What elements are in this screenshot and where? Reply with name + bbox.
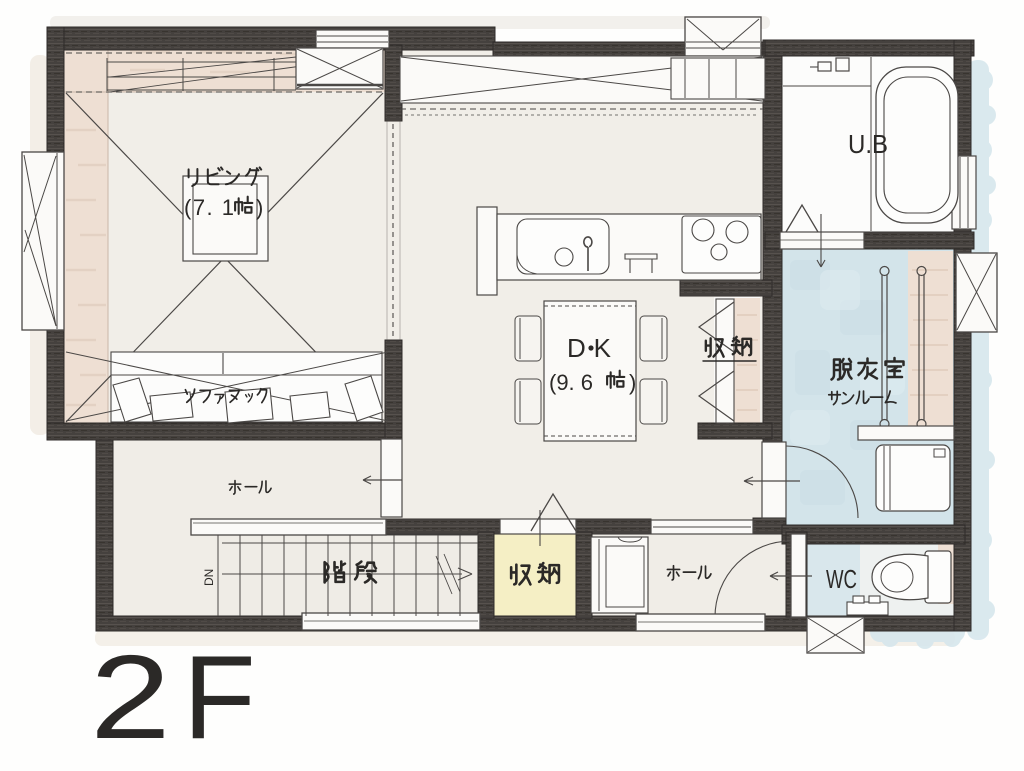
svg-text:(7. 1: (7. 1: [184, 195, 236, 220]
svg-text:WC: WC: [826, 564, 857, 594]
svg-text:2: 2: [90, 631, 171, 764]
svg-text:F: F: [183, 631, 256, 764]
svg-text:U.B: U.B: [848, 129, 888, 159]
svg-text:): ): [629, 370, 636, 395]
svg-text:): ): [256, 195, 263, 220]
svg-text:(9. 6: (9. 6: [549, 370, 593, 395]
svg-text:DN: DN: [202, 569, 216, 586]
